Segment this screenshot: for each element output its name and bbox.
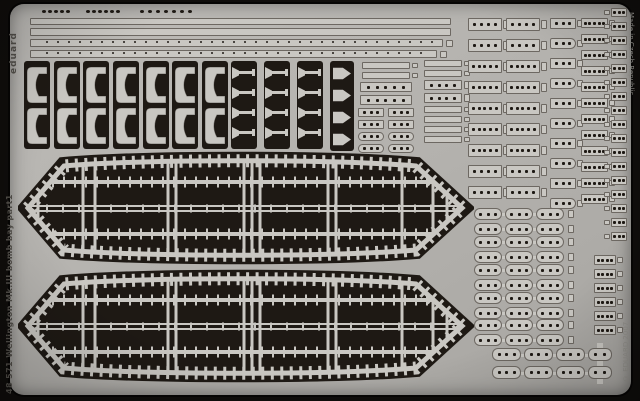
sheet-hole bbox=[60, 10, 64, 13]
bomb-bay-door-frame bbox=[18, 267, 474, 385]
bullet-column-part bbox=[550, 18, 576, 29]
tpin-part bbox=[265, 87, 289, 99]
sprue-tab bbox=[568, 266, 574, 274]
part-holes bbox=[493, 349, 520, 360]
chain-link-part bbox=[505, 307, 533, 319]
chain-link-part bbox=[505, 223, 533, 235]
plate-column-2-part bbox=[506, 144, 540, 157]
chain-link-part bbox=[492, 348, 521, 361]
chain-link-part bbox=[505, 319, 533, 331]
arrow-part bbox=[333, 132, 351, 147]
part-holes bbox=[389, 133, 413, 140]
part-holes bbox=[475, 320, 501, 330]
bracket-cell bbox=[83, 61, 109, 149]
sprue-tab bbox=[604, 164, 610, 169]
bullet-column-part bbox=[550, 138, 576, 149]
chain-link-part bbox=[556, 348, 585, 361]
sheet-hole bbox=[54, 10, 58, 13]
ladder-far-right-part bbox=[611, 106, 627, 115]
sprue-tab bbox=[604, 94, 610, 99]
part-holes bbox=[506, 308, 532, 318]
plus-link-part bbox=[588, 366, 612, 379]
small-plate-part bbox=[358, 108, 384, 117]
part-holes bbox=[425, 81, 461, 89]
part-holes bbox=[551, 59, 575, 68]
ladder-right-part bbox=[581, 98, 608, 108]
sheet-hole bbox=[86, 10, 90, 13]
part-holes bbox=[507, 145, 539, 156]
sprue-tab bbox=[604, 192, 610, 197]
ladder-far-right-part bbox=[611, 78, 627, 87]
part-holes bbox=[469, 19, 501, 30]
part-holes bbox=[612, 163, 626, 170]
part-holes bbox=[557, 349, 584, 360]
chain-link-part bbox=[505, 251, 533, 263]
bracket-part bbox=[145, 107, 167, 145]
part-holes bbox=[525, 349, 552, 360]
pill-part bbox=[358, 132, 384, 141]
tpin-part bbox=[232, 67, 256, 79]
sprue-tab bbox=[604, 150, 610, 155]
bracket-part bbox=[56, 107, 78, 145]
sprue-tab bbox=[541, 188, 547, 197]
plate-column-1-part bbox=[468, 39, 502, 52]
brand-text: eduard bbox=[9, 12, 19, 74]
part-holes bbox=[506, 252, 532, 262]
photo-etch-sheet-photo: eduard 48 571 Wellington Mk.III bomb bay… bbox=[0, 0, 640, 401]
strip-part bbox=[30, 28, 451, 36]
part-holes bbox=[475, 252, 501, 262]
bracket-part bbox=[204, 66, 226, 104]
bracket-part bbox=[85, 66, 107, 104]
chain-link-part bbox=[536, 292, 564, 304]
plus-arm bbox=[597, 379, 603, 384]
sheet-hole bbox=[180, 10, 184, 13]
bracket-part bbox=[85, 66, 107, 104]
ladder-far-right-part bbox=[611, 134, 627, 143]
part-holes bbox=[537, 224, 563, 234]
plate-column-2-part bbox=[506, 186, 540, 199]
sprue-tab bbox=[541, 125, 547, 134]
sprue-tab bbox=[604, 206, 610, 211]
part-holes bbox=[612, 51, 626, 58]
part-holes bbox=[506, 320, 532, 330]
bullet-column-part bbox=[550, 38, 576, 49]
bracket-cell bbox=[24, 61, 50, 149]
bracket-cell bbox=[172, 61, 198, 149]
sprue-tab bbox=[464, 117, 470, 122]
chain-link-part bbox=[505, 292, 533, 304]
bracket-part bbox=[204, 107, 226, 145]
bracket-part bbox=[115, 107, 137, 145]
plate-column-1-part bbox=[468, 60, 502, 73]
part-holes bbox=[361, 83, 411, 91]
sprue-tab bbox=[617, 257, 623, 263]
sprue-tab bbox=[464, 137, 470, 142]
bracket-part bbox=[26, 107, 48, 145]
tpin-part bbox=[265, 107, 289, 119]
plate-column-2-part bbox=[506, 165, 540, 178]
strip-part bbox=[30, 39, 443, 47]
sprue-tab bbox=[604, 38, 610, 43]
ladder-far-right-part bbox=[611, 64, 627, 73]
bar-part bbox=[362, 62, 410, 69]
part-holes bbox=[475, 265, 501, 275]
ladder-far-right-part bbox=[611, 162, 627, 171]
part-holes bbox=[551, 79, 575, 88]
part-holes bbox=[612, 233, 626, 240]
part-holes bbox=[537, 252, 563, 262]
ladder-lower-right-part bbox=[594, 255, 616, 265]
bar-part bbox=[424, 80, 462, 90]
ladder-lower-right-part bbox=[594, 269, 616, 279]
plate-column-2-part bbox=[506, 39, 540, 52]
sprue-tab bbox=[568, 309, 574, 317]
sprue-tab bbox=[604, 108, 610, 113]
ladder-lower-right-part bbox=[594, 283, 616, 293]
plus-link-part bbox=[588, 348, 612, 361]
chain-link-part bbox=[536, 307, 564, 319]
part-holes bbox=[389, 109, 413, 116]
bracket-part bbox=[56, 66, 78, 104]
bracket-part bbox=[204, 66, 226, 104]
sheet-hole bbox=[104, 10, 108, 13]
bar-part bbox=[424, 106, 462, 113]
part-holes bbox=[475, 237, 501, 247]
part-holes bbox=[595, 298, 615, 306]
part-holes bbox=[551, 159, 575, 168]
part-holes bbox=[507, 187, 539, 198]
plate-column-2-part bbox=[506, 102, 540, 115]
part-holes bbox=[425, 94, 461, 102]
chain-link-part bbox=[474, 307, 502, 319]
chain-link-part bbox=[536, 223, 564, 235]
sprue-tab bbox=[604, 178, 610, 183]
bullet-column-part bbox=[550, 98, 576, 109]
tpin-part bbox=[232, 107, 256, 119]
part-holes bbox=[359, 109, 383, 116]
chain-link-part bbox=[536, 208, 564, 220]
part-holes bbox=[506, 237, 532, 247]
bomb-bay-door-frame bbox=[18, 267, 474, 385]
ladder-far-right-part bbox=[611, 176, 627, 185]
sprue-tab bbox=[568, 253, 574, 261]
part-holes bbox=[551, 39, 575, 48]
sprue-tab bbox=[604, 80, 610, 85]
bracket-part bbox=[174, 107, 196, 145]
part-holes bbox=[537, 265, 563, 275]
bracket-cell bbox=[143, 61, 169, 149]
part-holes bbox=[612, 219, 626, 226]
part-holes bbox=[525, 367, 552, 378]
part-holes bbox=[469, 61, 501, 72]
sheet-hole bbox=[92, 10, 96, 13]
part-holes bbox=[589, 367, 611, 378]
bar-part bbox=[360, 82, 412, 92]
chain-link-part bbox=[474, 236, 502, 248]
bar-part bbox=[424, 126, 462, 133]
part-holes bbox=[507, 82, 539, 93]
tpin-part bbox=[298, 107, 322, 119]
bracket-part bbox=[174, 66, 196, 104]
part-holes bbox=[595, 312, 615, 320]
sprue-tab bbox=[604, 234, 610, 239]
chain-link-part bbox=[536, 264, 564, 276]
ladder-far-right-part bbox=[611, 190, 627, 199]
chain-link-part bbox=[474, 223, 502, 235]
part-holes bbox=[612, 23, 626, 30]
ladder-far-right-part bbox=[611, 50, 627, 59]
part-holes bbox=[612, 205, 626, 212]
arrow-part bbox=[333, 110, 351, 125]
part-holes bbox=[469, 124, 501, 135]
part-holes bbox=[506, 293, 532, 303]
chain-link-part bbox=[474, 264, 502, 276]
tpin-cell bbox=[264, 61, 290, 149]
part-holes bbox=[507, 124, 539, 135]
sprue-tab bbox=[412, 73, 418, 78]
ladder-lower-right-part bbox=[594, 325, 616, 335]
bracket-part bbox=[115, 107, 137, 145]
part-holes bbox=[612, 149, 626, 156]
part-holes bbox=[507, 19, 539, 30]
chain-link-part bbox=[505, 264, 533, 276]
pill-part bbox=[388, 132, 414, 141]
part-holes bbox=[359, 133, 383, 140]
part-holes bbox=[612, 93, 626, 100]
part-holes bbox=[551, 179, 575, 188]
bar-part bbox=[424, 60, 462, 67]
part-holes bbox=[507, 166, 539, 177]
tpin-part bbox=[298, 87, 322, 99]
chain-link-part bbox=[505, 236, 533, 248]
sprue-tab bbox=[541, 62, 547, 71]
part-holes bbox=[551, 199, 575, 208]
small-plate-part bbox=[388, 108, 414, 117]
tpin-part bbox=[298, 67, 322, 79]
part-holes bbox=[537, 209, 563, 219]
sprue-tab bbox=[541, 83, 547, 92]
chain-link-part bbox=[474, 334, 502, 346]
part-holes bbox=[506, 209, 532, 219]
tpin-part bbox=[232, 87, 256, 99]
sheet-hole bbox=[110, 10, 114, 13]
ladder-far-right-part bbox=[611, 204, 627, 213]
ladder-far-right-part bbox=[611, 232, 627, 241]
arrow-cell bbox=[330, 61, 354, 151]
bullet-column-part bbox=[550, 78, 576, 89]
bracket-cell bbox=[113, 61, 139, 149]
bracket-part bbox=[145, 66, 167, 104]
plate-column-2-part bbox=[506, 60, 540, 73]
part-holes bbox=[475, 224, 501, 234]
bullet-column-part bbox=[550, 158, 576, 169]
part-holes bbox=[507, 40, 539, 51]
plus-arm bbox=[597, 343, 603, 348]
sprue-tab bbox=[568, 210, 574, 218]
sprue-tab bbox=[568, 336, 574, 344]
chain-link-part bbox=[536, 334, 564, 346]
part-holes bbox=[475, 209, 501, 219]
part-holes bbox=[493, 367, 520, 378]
sheet-hole bbox=[48, 10, 52, 13]
part-holes bbox=[475, 293, 501, 303]
sprue-tab bbox=[541, 104, 547, 113]
part-holes bbox=[389, 121, 413, 128]
bracket-part bbox=[145, 107, 167, 145]
parts-layer bbox=[0, 0, 640, 401]
part-holes bbox=[359, 121, 383, 128]
part-holes bbox=[589, 349, 611, 360]
sheet-edge-label: 48 571 Wellington Mk.III bomb bay part1 bbox=[5, 148, 14, 394]
bar-part bbox=[424, 116, 462, 123]
part-holes bbox=[537, 335, 563, 345]
part-holes bbox=[551, 99, 575, 108]
arrow-part bbox=[333, 88, 351, 103]
chain-link-part bbox=[556, 366, 585, 379]
sprue-tab bbox=[446, 40, 453, 47]
part-holes bbox=[612, 191, 626, 198]
part-holes bbox=[361, 96, 411, 104]
part-holes bbox=[551, 19, 575, 28]
plate-column-1-part bbox=[468, 18, 502, 31]
bracket-part bbox=[145, 66, 167, 104]
sheet-hole bbox=[188, 10, 192, 13]
part-holes bbox=[612, 177, 626, 184]
ladder-lower-right-part bbox=[594, 311, 616, 321]
bracket-part bbox=[56, 107, 78, 145]
sprue-tab bbox=[541, 20, 547, 29]
ladder-far-right-part bbox=[611, 218, 627, 227]
part-holes bbox=[537, 237, 563, 247]
sprue-tab bbox=[604, 52, 610, 57]
part-holes bbox=[506, 335, 532, 345]
bracket-part bbox=[85, 107, 107, 145]
bracket-part bbox=[26, 66, 48, 104]
plate-column-2-part bbox=[506, 18, 540, 31]
part-holes bbox=[537, 280, 563, 290]
bullet-column-part bbox=[550, 58, 576, 69]
bullet-column-part bbox=[550, 178, 576, 189]
sprue-tab bbox=[568, 225, 574, 233]
chain-link-part bbox=[536, 251, 564, 263]
part-holes bbox=[537, 320, 563, 330]
part-holes bbox=[551, 119, 575, 128]
chain-link-part bbox=[474, 319, 502, 331]
chain-link-part bbox=[474, 292, 502, 304]
chain-link-part bbox=[536, 319, 564, 331]
sheet-hole bbox=[156, 10, 160, 13]
copyright-label: © EDUARD 2007 bbox=[622, 290, 630, 382]
part-holes bbox=[557, 367, 584, 378]
bracket-part bbox=[26, 107, 48, 145]
sheet-hole bbox=[172, 10, 176, 13]
sheet-hole bbox=[116, 10, 120, 13]
bracket-part bbox=[174, 107, 196, 145]
plate-column-1-part bbox=[468, 123, 502, 136]
bullet-column-part bbox=[550, 118, 576, 129]
part-holes bbox=[469, 40, 501, 51]
sprue-tab bbox=[568, 281, 574, 289]
part-holes bbox=[469, 82, 501, 93]
part-holes bbox=[612, 107, 626, 114]
plus-arm bbox=[597, 361, 603, 366]
chain-link-part bbox=[505, 334, 533, 346]
bracket-part bbox=[115, 66, 137, 104]
chain-link-part bbox=[474, 208, 502, 220]
ladder-far-right-part bbox=[611, 8, 627, 17]
bar-part bbox=[424, 136, 462, 143]
part-holes bbox=[595, 284, 615, 292]
bracket-part bbox=[26, 66, 48, 104]
small-plate-part bbox=[388, 120, 414, 129]
part-holes bbox=[507, 61, 539, 72]
ladder-far-right-part bbox=[611, 120, 627, 129]
sprue-tab bbox=[604, 220, 610, 225]
part-holes bbox=[612, 65, 626, 72]
sprue-tab bbox=[604, 10, 610, 15]
chain-link-part bbox=[505, 208, 533, 220]
tpin-part bbox=[232, 127, 256, 139]
bar-part bbox=[424, 93, 462, 103]
chain-link-part bbox=[505, 279, 533, 291]
part-holes bbox=[612, 121, 626, 128]
sheet-hole bbox=[148, 10, 152, 13]
bar-part bbox=[424, 70, 462, 77]
chain-link-part bbox=[524, 366, 553, 379]
part-holes bbox=[537, 293, 563, 303]
ladder-far-right-part bbox=[611, 92, 627, 101]
part-holes bbox=[595, 270, 615, 278]
tpin-cell bbox=[297, 61, 323, 149]
part-holes bbox=[551, 139, 575, 148]
sprue-tab bbox=[541, 167, 547, 176]
sprue-tab bbox=[541, 146, 547, 155]
bracket-cell bbox=[54, 61, 80, 149]
sprue-tab bbox=[464, 94, 470, 102]
chain-link-part bbox=[492, 366, 521, 379]
bar-part bbox=[362, 72, 410, 79]
sprue-tab bbox=[604, 66, 610, 71]
sheet-hole bbox=[98, 10, 102, 13]
strip-part bbox=[30, 50, 437, 58]
part-holes bbox=[582, 99, 607, 107]
plate-column-1-part bbox=[468, 102, 502, 115]
small-plate-part bbox=[358, 120, 384, 129]
sprue-tab bbox=[604, 24, 610, 29]
sheet-hole bbox=[42, 10, 46, 13]
ladder-lower-right-part bbox=[594, 297, 616, 307]
part-holes bbox=[595, 256, 615, 264]
bracket-cell bbox=[202, 61, 228, 149]
sprue-tab bbox=[604, 136, 610, 141]
part-holes bbox=[612, 135, 626, 142]
ladder-far-right-part bbox=[611, 22, 627, 31]
arrow-part bbox=[333, 66, 351, 81]
plate-column-2-part bbox=[506, 123, 540, 136]
tpin-part bbox=[265, 127, 289, 139]
sprue-tab bbox=[412, 63, 418, 68]
sheet-hole bbox=[140, 10, 144, 13]
part-holes bbox=[507, 103, 539, 114]
ladder-far-right-part bbox=[611, 36, 627, 45]
tpin-cell bbox=[231, 61, 257, 149]
chain-link-part bbox=[536, 236, 564, 248]
bracket-part bbox=[85, 107, 107, 145]
bracket-part bbox=[174, 66, 196, 104]
sprue-tab bbox=[568, 321, 574, 329]
chain-link-part bbox=[474, 251, 502, 263]
